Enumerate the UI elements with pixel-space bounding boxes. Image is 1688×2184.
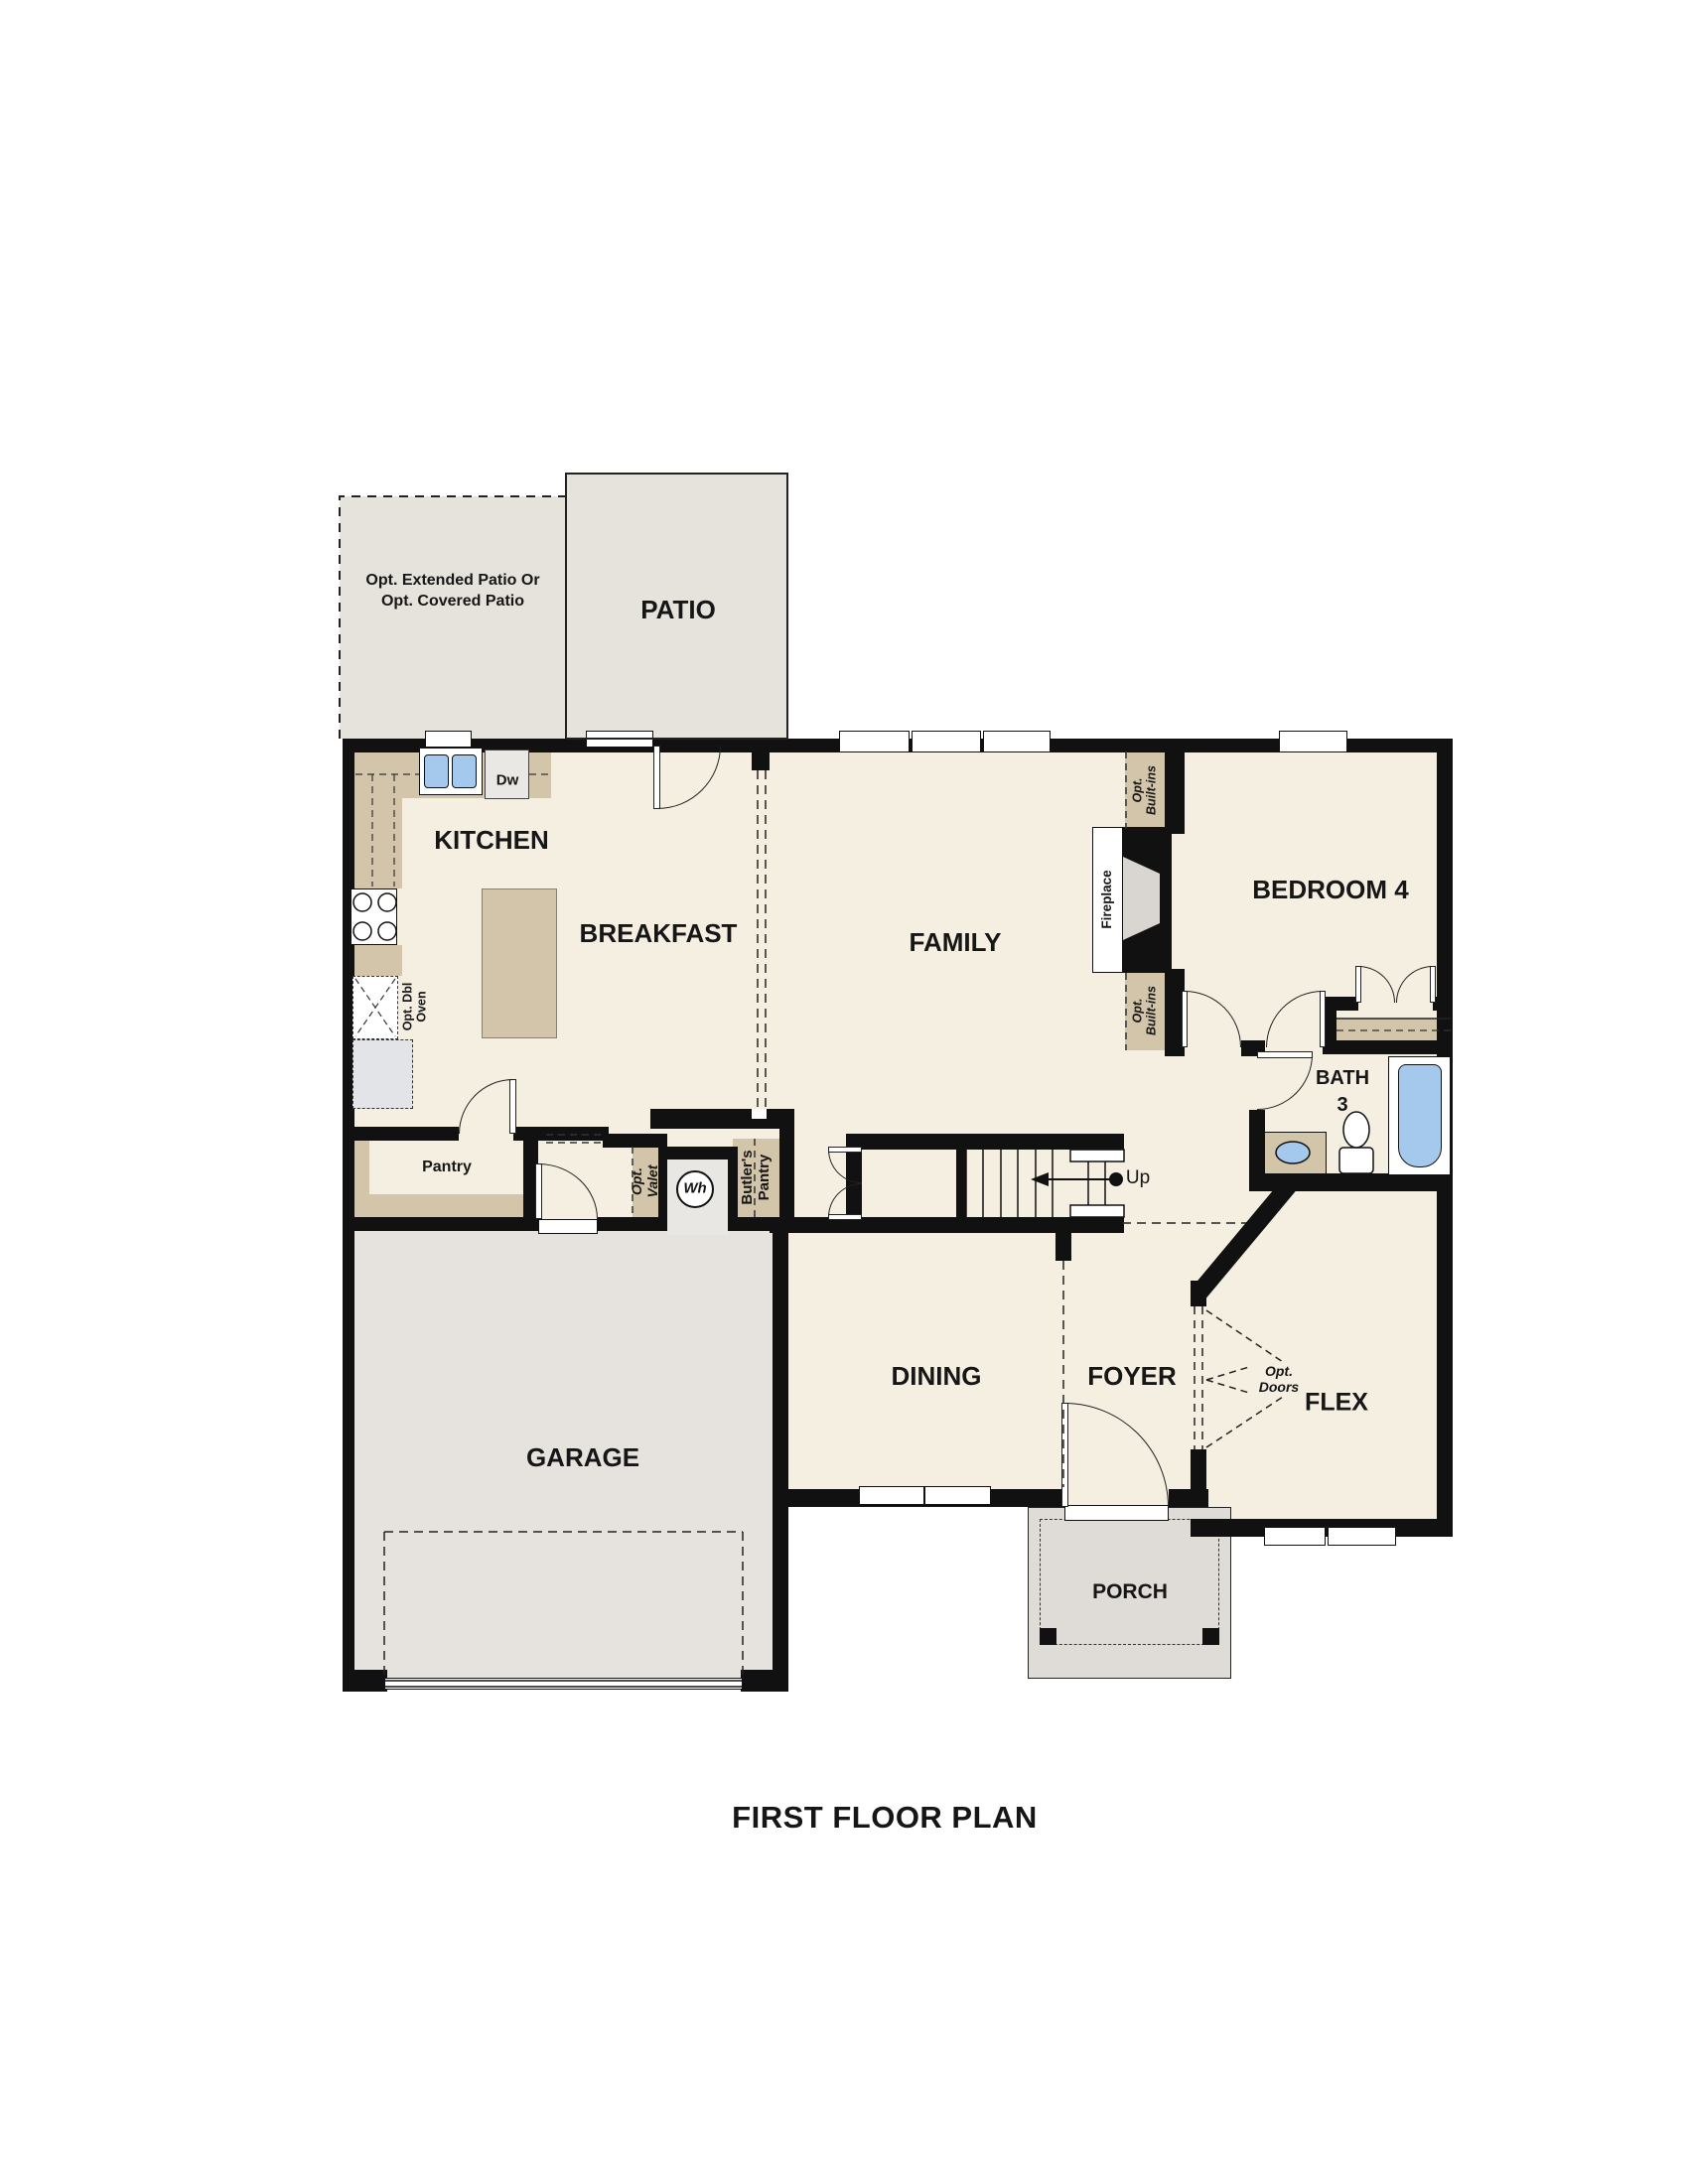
room-label-breakfast: BREAKFAST [580, 919, 738, 949]
wall [752, 739, 770, 770]
butlers-pantry-label: Butler's Pantry [739, 1150, 774, 1204]
floor-plan-canvas: KITCHEN BREAKFAST FAMILY BEDROOM 4 BATH … [0, 0, 1688, 2184]
bedroom-closet-shelf [1336, 1019, 1451, 1040]
opening-notch [752, 1109, 767, 1119]
wall [343, 1670, 387, 1692]
window [859, 1486, 924, 1505]
window [912, 731, 981, 752]
wall [846, 1134, 1124, 1150]
dishwasher-label: Dw [496, 771, 519, 788]
window [839, 731, 910, 752]
garage-door [384, 1678, 743, 1690]
kitchen-counter-left2 [354, 945, 402, 976]
wall [1249, 1173, 1453, 1191]
up-label: Up [1126, 1167, 1150, 1189]
sink-basin [452, 754, 477, 788]
garage-entry-threshold [538, 1219, 598, 1234]
opt-built-ins-label: Opt. Built-ins [1131, 986, 1160, 1035]
opt-dbl-oven-label: Opt. Dbl Oven [401, 983, 430, 1031]
opt-built-ins-label: Opt. Built-ins [1131, 765, 1160, 815]
sink-basin [424, 754, 449, 788]
wall [770, 1217, 1124, 1233]
room-label-garage: GARAGE [526, 1443, 639, 1473]
wall [343, 739, 354, 1678]
window [1328, 1527, 1396, 1546]
wall [1055, 1233, 1071, 1261]
window [1264, 1527, 1326, 1546]
porch-post [1202, 1628, 1219, 1645]
window [983, 731, 1051, 752]
bathtub [1398, 1064, 1442, 1167]
kitchen-island [482, 888, 557, 1038]
page-title: FIRST FLOOR PLAN [732, 1800, 1038, 1836]
room-label-dining: DINING [892, 1362, 982, 1392]
room-label-foyer: FOYER [1087, 1362, 1177, 1392]
pantry-label: Pantry [422, 1159, 472, 1176]
front-door-threshold [1064, 1505, 1169, 1521]
window [425, 731, 472, 748]
wall [598, 1217, 667, 1231]
room-label-bedroom4: BEDROOM 4 [1252, 876, 1408, 905]
room-label-kitchen: KITCHEN [434, 826, 549, 856]
room-label-flex: FLEX [1305, 1389, 1368, 1418]
wall [658, 1147, 738, 1160]
kitchen-counter-left [354, 752, 402, 888]
wall [1165, 739, 1185, 834]
opt-valet-label: Opt. Valet [629, 1165, 660, 1198]
stove [351, 888, 397, 945]
room-label-family: FAMILY [910, 928, 1002, 958]
wall [1191, 1281, 1206, 1306]
porch-post [1040, 1628, 1056, 1645]
wall [354, 1217, 538, 1231]
refrigerator-space [352, 1039, 413, 1109]
room-label-patio: PATIO [640, 596, 716, 625]
pantry-shelf-bottom [354, 1194, 523, 1217]
patio-option-note: Opt. Extended Patio Or Opt. Covered Pati… [365, 571, 539, 613]
room-label-bath3: BATH 3 [1316, 1065, 1369, 1119]
bath-vanity [1259, 1132, 1327, 1175]
fireplace-label: Fireplace [1099, 870, 1115, 928]
wall [728, 1147, 738, 1231]
patio-optional-area [340, 496, 566, 739]
room-label-porch: PORCH [1092, 1580, 1168, 1604]
window [1279, 731, 1347, 752]
wall [1249, 1110, 1265, 1187]
window [586, 731, 653, 748]
wall [779, 1129, 794, 1231]
opt-doors-label: Opt. Doors [1259, 1363, 1299, 1395]
wall [1191, 1449, 1206, 1507]
wall [1323, 1040, 1451, 1054]
water-heater-label: Wh [683, 1179, 706, 1196]
wall [354, 1127, 459, 1141]
window [924, 1486, 991, 1505]
wall [773, 1217, 788, 1678]
exterior-patch [773, 1507, 1028, 1547]
double-oven-optional [352, 976, 398, 1039]
fireplace-firebox [1123, 827, 1172, 973]
wall [650, 1109, 794, 1129]
wall [956, 1150, 966, 1217]
wall [603, 1134, 658, 1148]
